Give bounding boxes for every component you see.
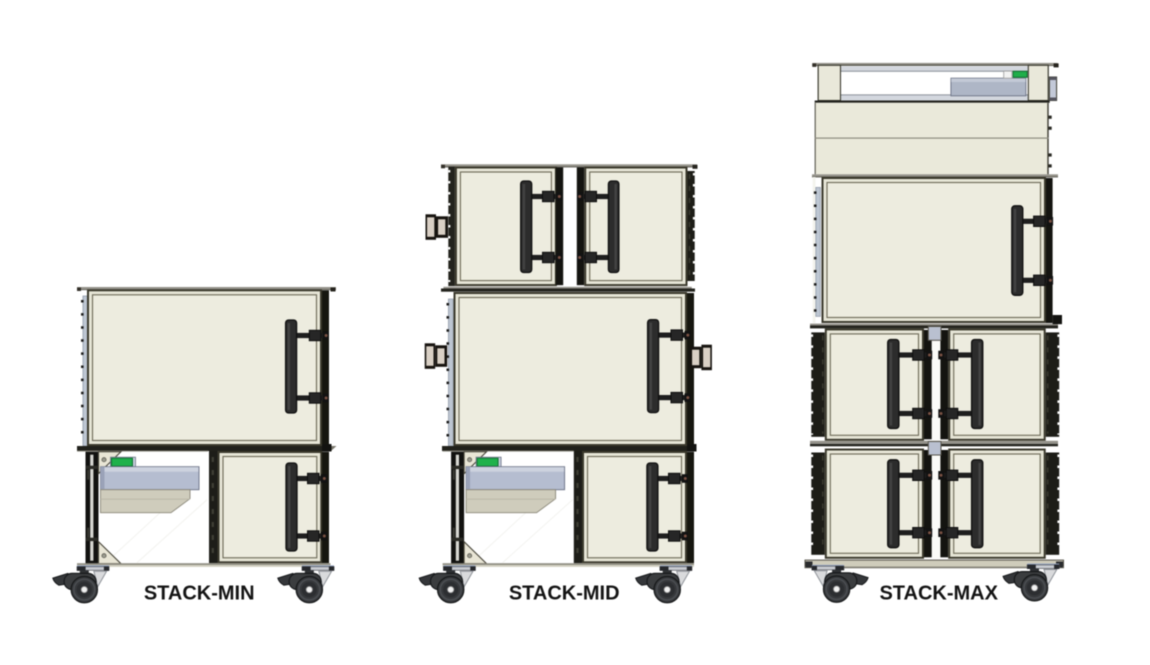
svg-text:STACK-MAX: STACK-MAX bbox=[879, 583, 998, 605]
svg-text:STACK-MID: STACK-MID bbox=[509, 583, 620, 605]
svg-text:STACK-MIN: STACK-MIN bbox=[144, 583, 255, 605]
